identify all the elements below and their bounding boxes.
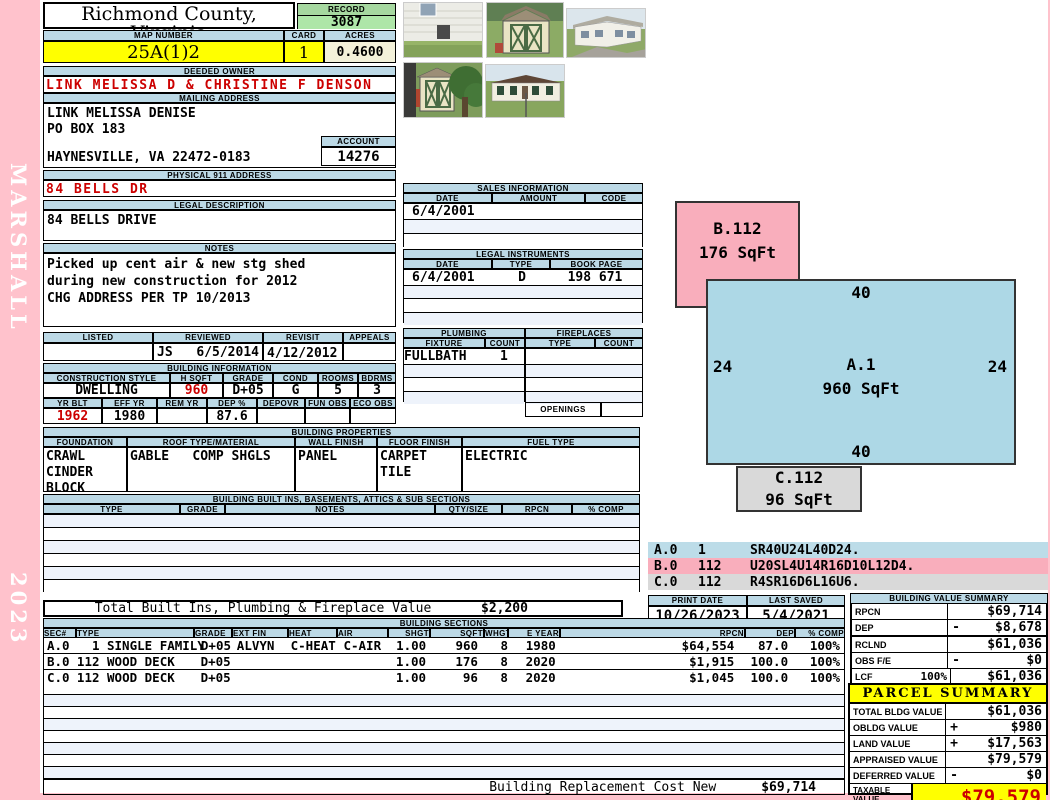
ps-taxable-label: TAXABLE VALUE bbox=[850, 784, 913, 800]
bvs-rclnd-value: $61,036 bbox=[964, 637, 1046, 652]
photo-storage-shed[interactable] bbox=[486, 2, 564, 58]
photo-shed-and-tree[interactable] bbox=[403, 62, 483, 118]
photo-house-front-view[interactable] bbox=[485, 64, 565, 118]
ps-taxable-label-2: VALUE bbox=[853, 795, 880, 800]
built-ins-total-label: Total Built Ins, Plumbing & Fireplace Va… bbox=[45, 601, 481, 616]
bs-a-eyear: 1980 bbox=[508, 638, 560, 653]
ps-totalbldg-value: $61,036 bbox=[962, 704, 1046, 719]
sketch-code-c: C.0 112 R4SR16D6L16U6. bbox=[648, 574, 1048, 590]
li-type-label: TYPE bbox=[492, 259, 550, 269]
li-type: D bbox=[493, 270, 551, 285]
ps-deferred-value: $0 bbox=[962, 768, 1046, 783]
bdrms-value: 3 bbox=[358, 383, 396, 398]
photo-house-angle-view[interactable] bbox=[566, 8, 646, 58]
roof-value: GABLE COMP SHGLS bbox=[127, 447, 295, 492]
account-value: 14276 bbox=[321, 147, 396, 166]
fireplace-type-label: TYPE bbox=[525, 338, 595, 348]
sketch-a-dim-top: 40 bbox=[708, 283, 1014, 302]
bs-b-sec: B.0 bbox=[44, 654, 77, 669]
remyr-label: REM YR bbox=[157, 398, 207, 408]
bs-a-comp: 100% bbox=[794, 638, 844, 653]
sketch-c-sqft: 96 SqFt bbox=[738, 490, 860, 509]
roof-material: COMP SHGLS bbox=[169, 448, 294, 491]
ps-deferred-label: DEFERRED VALUE bbox=[850, 768, 946, 783]
bvs-row-obs: OBS F/E - $0 bbox=[852, 653, 1046, 669]
code-b-num: 112 bbox=[698, 559, 750, 574]
effyr-value: 1980 bbox=[102, 408, 157, 424]
bvs-row-dep: DEP - $8,678 bbox=[852, 620, 1046, 636]
bs-a-heat: C-HEAT bbox=[289, 638, 338, 653]
building-section-row-a: A.0 1 SINGLE FAMILY D+05 ALVYN C-HEAT C-… bbox=[44, 638, 844, 654]
reviewed-by: JS bbox=[157, 345, 173, 360]
acres-value: 0.4600 bbox=[324, 41, 396, 63]
foundation-line-2: CINDER BLOCK bbox=[44, 465, 126, 497]
ps-taxable-label-1: TAXABLE bbox=[853, 786, 890, 795]
county-header-box: Richmond County, Virginia Commissioner o… bbox=[43, 2, 295, 29]
bs-b-dep: 100.0 bbox=[744, 654, 794, 669]
dep-pct-label: DEP % bbox=[207, 398, 257, 408]
bdrms-label: BDRMS bbox=[358, 373, 396, 383]
sketch-code-b: B.0 112 U20SL4U14R16D10L12D4. bbox=[648, 558, 1048, 574]
bvs-rpcn-value: $69,714 bbox=[964, 604, 1046, 619]
card-body: Richmond County, Virginia Commissioner o… bbox=[40, 0, 1048, 793]
li-book: 198 671 bbox=[551, 270, 639, 285]
sketch-b-sqft: 176 SqFt bbox=[677, 243, 798, 262]
bi-type-label: TYPE bbox=[43, 504, 180, 514]
sketch-a-label: A.1 bbox=[708, 355, 1014, 374]
ps-land-value: $17,563 bbox=[962, 736, 1046, 751]
depovr-label: DEPOVR bbox=[257, 398, 305, 408]
grade-value: D+05 bbox=[223, 383, 273, 398]
mailing-line-1: LINK MELISSA DENISE bbox=[44, 104, 395, 122]
bvs-rclnd-label: RCLND bbox=[852, 637, 948, 652]
building-sections-empty-rows bbox=[43, 683, 845, 779]
fireplaces-table bbox=[525, 348, 643, 402]
map-number-label: MAP NUMBER bbox=[43, 30, 284, 41]
mailing-address-label: MAILING ADDRESS bbox=[43, 93, 396, 103]
photo-house-side-view[interactable] bbox=[403, 2, 483, 58]
bvs-obs-label: OBS F/E bbox=[852, 653, 948, 668]
ecoobs-value bbox=[350, 408, 396, 424]
sales-amount-label: AMOUNT bbox=[492, 193, 585, 203]
bi-comp-label: % COMP bbox=[572, 504, 640, 514]
reviewed-date: 6/5/2014 bbox=[196, 345, 259, 360]
remyr-value bbox=[157, 408, 207, 424]
sketch-c-label: C.112 bbox=[738, 468, 860, 487]
ps-row-land: LAND VALUE + $17,563 bbox=[850, 736, 1046, 752]
funobs-value bbox=[305, 408, 350, 424]
legal-description-label: LEGAL DESCRIPTION bbox=[43, 200, 396, 210]
sketch-a-dim-bottom: 40 bbox=[708, 442, 1014, 461]
built-ins-empty-rows bbox=[43, 514, 640, 592]
code-c-sec: C.0 bbox=[648, 575, 698, 590]
bs-a-dep: 87.0 bbox=[744, 638, 794, 653]
legal-instruments-table: 6/4/2001 D 198 671 bbox=[403, 269, 643, 323]
house-side-photo-art bbox=[404, 3, 483, 58]
bvs-row-lcf: LCF100% $61,036 bbox=[852, 669, 1046, 684]
effyr-label: EFF YR bbox=[102, 398, 157, 408]
bs-a-shgt: 1.00 bbox=[388, 638, 430, 653]
plumbing-title: PLUMBING bbox=[403, 328, 525, 338]
building-sections-headers: SEC# TYPE GRADE EXT FIN HEAT AIR SHGT SQ… bbox=[43, 628, 845, 638]
bvs-dep-value: $8,678 bbox=[964, 620, 1046, 635]
parcel-summary-box: PARCEL SUMMARY TOTAL BLDG VALUE $61,036 … bbox=[848, 683, 1048, 795]
ps-land-sign: + bbox=[946, 736, 962, 751]
sales-table: 6/4/2001 bbox=[403, 203, 643, 247]
li-row: 6/4/2001 D 198 671 bbox=[404, 270, 642, 286]
notes-label: NOTES bbox=[43, 243, 396, 253]
fuel-type-value: ELECTRIC bbox=[462, 447, 640, 492]
li-date-label: DATE bbox=[403, 259, 492, 269]
bs-h-heat: HEAT bbox=[288, 628, 337, 638]
bi-notes-label: NOTES bbox=[225, 504, 435, 514]
code-a-sec: A.0 bbox=[648, 543, 698, 558]
revisit-label: REVISIT bbox=[263, 332, 343, 343]
revisit-value: 4/12/2012 bbox=[263, 343, 343, 361]
parcel-summary-title: PARCEL SUMMARY bbox=[850, 685, 1046, 704]
building-section-row-b: B.0 112 WOOD DECK D+05 1.00 176 8 2020 $… bbox=[44, 654, 844, 670]
bs-h-ext: EXT FIN bbox=[232, 628, 288, 638]
rooms-value: 5 bbox=[318, 383, 358, 398]
bs-a-air: C-AIR bbox=[337, 638, 388, 653]
bs-h-grade: GRADE bbox=[194, 628, 232, 638]
funobs-label: FUN OBS bbox=[305, 398, 350, 408]
rooms-label: ROOMS bbox=[318, 373, 358, 383]
sidebar-year-tab: 2023 bbox=[6, 572, 31, 652]
floor-finish-value: CARPET TILE bbox=[377, 447, 462, 492]
built-ins-title: BUILDING BUILT INS, BASEMENTS, ATTICS & … bbox=[43, 494, 640, 504]
hsqft-label: H SQFT bbox=[170, 373, 223, 383]
bs-h-type: TYPE bbox=[76, 628, 194, 638]
foundation-label: FOUNDATION bbox=[43, 437, 127, 447]
bvs-lcf-value: $61,036 bbox=[967, 669, 1046, 684]
appeals-label: APPEALS bbox=[343, 332, 396, 343]
fixture-count-label: COUNT bbox=[485, 338, 525, 348]
bs-a-ext: ALVYN bbox=[233, 638, 289, 653]
bs-b-rpcn: $1,915 bbox=[560, 654, 745, 669]
bs-h-rpcn: RPCN bbox=[560, 628, 745, 638]
sales-row: 6/4/2001 bbox=[404, 204, 642, 220]
ps-land-label: LAND VALUE bbox=[850, 736, 946, 751]
grade-label: GRADE bbox=[223, 373, 273, 383]
sketch-section-c: C.112 96 SqFt bbox=[736, 466, 862, 512]
account-label: ACCOUNT bbox=[321, 136, 396, 147]
plumbing-count: 1 bbox=[500, 349, 524, 364]
bs-h-eyear: E YEAR bbox=[508, 628, 560, 638]
bvs-row-rclnd: RCLND $61,036 bbox=[852, 636, 1046, 653]
bvs-dep-sign: - bbox=[948, 620, 964, 635]
foundation-value: CRAWL CINDER BLOCK bbox=[43, 447, 127, 492]
dep-pct-value: 87.6 bbox=[207, 408, 257, 424]
li-book-label: BOOK PAGE bbox=[550, 259, 643, 269]
acres-label: ACRES bbox=[324, 30, 396, 41]
bi-qty-label: QTY/SIZE bbox=[435, 504, 502, 514]
sidebar-county-tab: MARSHALL bbox=[6, 163, 31, 343]
listed-label: LISTED bbox=[43, 332, 153, 343]
depovr-value bbox=[257, 408, 305, 424]
ps-row-taxable: TAXABLE VALUE $79,579 bbox=[850, 784, 1046, 800]
hsqft-value: 960 bbox=[170, 383, 223, 398]
bvs-lcf-label: LCF bbox=[855, 672, 873, 682]
ps-row-obldg: OBLDG VALUE + $980 bbox=[850, 720, 1046, 736]
sales-code-label: CODE bbox=[585, 193, 643, 203]
bs-b-eyear: 2020 bbox=[508, 654, 560, 669]
replacement-cost-label: Building Replacement Cost New bbox=[489, 780, 716, 795]
plumbing-fixture: FULLBATH bbox=[404, 349, 500, 364]
bvs-lcf-label-cell: LCF100% bbox=[852, 669, 951, 684]
legal-description-value: 84 BELLS DRIVE bbox=[43, 210, 396, 241]
bs-b-whgt: 8 bbox=[484, 654, 508, 669]
bs-a-sqft: 960 bbox=[430, 638, 484, 653]
shed-tree-photo-art bbox=[404, 63, 483, 118]
fixture-label: FIXTURE bbox=[403, 338, 485, 348]
plumbing-table: FULLBATH 1 bbox=[403, 348, 525, 402]
sketch-b-label: B.112 bbox=[677, 219, 798, 238]
building-sections-title: BUILDING SECTIONS bbox=[43, 618, 845, 628]
bs-h-shgt: SHGT bbox=[388, 628, 430, 638]
openings-label: OPENINGS bbox=[525, 402, 601, 417]
ps-obldg-sign: + bbox=[946, 720, 962, 735]
bs-a-sec: A.0 bbox=[44, 638, 77, 653]
notes-line-3: CHG ADDRESS PER TP 10/2013 bbox=[44, 290, 395, 307]
ps-row-deferred: DEFERRED VALUE - $0 bbox=[850, 768, 1046, 784]
sales-date-label: DATE bbox=[403, 193, 492, 203]
ps-row-totalbldg: TOTAL BLDG VALUE $61,036 bbox=[850, 704, 1046, 720]
bs-h-air: AIR bbox=[337, 628, 388, 638]
bvs-rpcn-label: RPCN bbox=[852, 604, 948, 619]
ps-appraised-value: $79,579 bbox=[962, 752, 1046, 767]
bvs-dep-label: DEP bbox=[852, 620, 948, 635]
floor-finish-label: FLOOR FINISH bbox=[377, 437, 462, 447]
construction-style-label: CONSTRUCTION STYLE bbox=[43, 373, 170, 383]
bs-h-sec: SEC# bbox=[43, 628, 76, 638]
floor-line-1: CARPET bbox=[378, 448, 461, 465]
sales-title: SALES INFORMATION bbox=[403, 183, 643, 193]
sketch-code-a: A.0 1 SR40U24L40D24. bbox=[648, 542, 1048, 558]
bs-b-shgt: 1.00 bbox=[388, 654, 430, 669]
map-number-value: 25A(1)2 bbox=[43, 41, 284, 63]
built-ins-total-value: $2,200 bbox=[481, 601, 621, 616]
house-angle-photo-art bbox=[567, 9, 646, 58]
physical-address-value: 84 BELLS DR bbox=[43, 180, 396, 197]
listed-value bbox=[43, 343, 153, 361]
card-label: CARD bbox=[284, 30, 324, 41]
ps-totalbldg-label: TOTAL BLDG VALUE bbox=[850, 704, 946, 719]
sketch-a-sqft: 960 SqFt bbox=[708, 379, 1014, 398]
sketch-section-a: 40 24 24 A.1 960 SqFt 40 bbox=[706, 279, 1016, 465]
plumbing-row: FULLBATH 1 bbox=[404, 349, 524, 365]
print-date-label: PRINT DATE bbox=[648, 595, 747, 606]
notes-line-2: during new construction for 2012 bbox=[44, 273, 395, 290]
last-saved-label: LAST SAVED bbox=[747, 595, 845, 606]
wall-finish-label: WALL FINISH bbox=[295, 437, 377, 447]
bs-b-type: 112 WOOD DECK bbox=[77, 654, 195, 669]
wall-finish-value: PANEL bbox=[295, 447, 377, 492]
house-front-photo-art bbox=[486, 65, 565, 118]
code-a-num: 1 bbox=[698, 543, 750, 558]
building-sections-rows: A.0 1 SINGLE FAMILY D+05 ALVYN C-HEAT C-… bbox=[43, 638, 845, 686]
yrblt-value: 1962 bbox=[43, 408, 102, 424]
code-a-vector: SR40U24L40D24. bbox=[750, 543, 860, 558]
ps-row-appraised: APPRAISED VALUE $79,579 bbox=[850, 752, 1046, 768]
ps-obldg-label: OBLDG VALUE bbox=[850, 720, 946, 735]
bs-h-dep: DEP bbox=[745, 628, 795, 638]
code-b-vector: U20SL4U14R16D10L12D4. bbox=[750, 559, 914, 574]
bvs-obs-sign: - bbox=[948, 653, 964, 668]
bvs-lcf-pct: 100% bbox=[921, 670, 948, 683]
ecoobs-label: ECO OBS bbox=[350, 398, 396, 408]
built-ins-total-row: Total Built Ins, Plumbing & Fireplace Va… bbox=[43, 600, 623, 617]
roof-label: ROOF TYPE/MATERIAL bbox=[127, 437, 295, 447]
fireplaces-title: FIREPLACES bbox=[525, 328, 643, 338]
replacement-cost-value: $69,714 bbox=[761, 780, 816, 795]
bs-b-sqft: 176 bbox=[430, 654, 484, 669]
bvs-row-rpcn: RPCN $69,714 bbox=[852, 604, 1046, 620]
bs-a-grade: D+05 bbox=[195, 638, 233, 653]
yrblt-label: YR BLT bbox=[43, 398, 102, 408]
notes-box: Picked up cent air & new stg shed during… bbox=[43, 253, 396, 327]
record-box: RECORD 3087 bbox=[297, 3, 396, 29]
building-value-summary-table: RPCN $69,714 DEP - $8,678 RCLND $61,036 … bbox=[850, 604, 1048, 686]
notes-line-1: Picked up cent air & new stg shed bbox=[44, 254, 395, 273]
bs-a-type: 1 SINGLE FAMILY bbox=[77, 638, 195, 653]
floor-line-2: TILE bbox=[378, 465, 461, 481]
property-record-card: MARSHALL 2023 Richmond County, Virginia … bbox=[0, 0, 1050, 800]
appeals-value bbox=[343, 343, 396, 361]
record-value: 3087 bbox=[298, 16, 395, 29]
cond-label: COND bbox=[273, 373, 318, 383]
building-value-summary-title: BUILDING VALUE SUMMARY bbox=[850, 593, 1048, 604]
foundation-line-1: CRAWL bbox=[44, 448, 126, 465]
construction-style-value: DWELLING bbox=[43, 383, 170, 398]
reviewed-label: REVIEWED bbox=[153, 332, 263, 343]
bi-grade-label: GRADE bbox=[180, 504, 225, 514]
fuel-type-label: FUEL TYPE bbox=[462, 437, 640, 447]
bs-h-whgt: WHGT bbox=[484, 628, 508, 638]
building-properties-title: BUILDING PROPERTIES bbox=[43, 427, 640, 437]
legal-instruments-title: LEGAL INSTRUMENTS bbox=[403, 249, 643, 259]
bs-a-rpcn: $64,554 bbox=[560, 638, 744, 653]
code-b-sec: B.0 bbox=[648, 559, 698, 574]
fireplace-count-label: COUNT bbox=[595, 338, 643, 348]
ps-obldg-value: $980 bbox=[962, 720, 1046, 735]
li-date: 6/4/2001 bbox=[404, 270, 493, 285]
ps-deferred-sign: - bbox=[946, 768, 962, 783]
shed-photo-art bbox=[487, 3, 564, 58]
bs-b-grade: D+05 bbox=[195, 654, 233, 669]
bvs-obs-value: $0 bbox=[964, 653, 1046, 668]
bs-b-comp: 100% bbox=[794, 654, 844, 669]
code-c-vector: R4SR16D6L16U6. bbox=[750, 575, 860, 590]
physical-address-label: PHYSICAL 911 ADDRESS bbox=[43, 170, 396, 180]
code-c-num: 112 bbox=[698, 575, 750, 590]
building-info-title: BUILDING INFORMATION bbox=[43, 363, 396, 373]
deeded-owner-label: DEEDED OWNER bbox=[43, 66, 396, 76]
replacement-cost-row: Building Replacement Cost New $69,714 bbox=[43, 779, 845, 795]
bi-rpcn-label: RPCN bbox=[502, 504, 572, 514]
cond-value: G bbox=[273, 383, 318, 398]
reviewed-value: JS 6/5/2014 bbox=[153, 343, 263, 361]
bs-h-sqft: SQFT bbox=[430, 628, 484, 638]
bs-a-whgt: 8 bbox=[484, 638, 508, 653]
card-value: 1 bbox=[284, 41, 324, 63]
openings-value bbox=[601, 402, 643, 417]
bs-h-comp: % COMP bbox=[795, 628, 845, 638]
ps-appraised-label: APPRAISED VALUE bbox=[850, 752, 946, 767]
roof-type: GABLE bbox=[128, 448, 169, 491]
ps-taxable-value: $79,579 bbox=[913, 784, 1046, 800]
deeded-owner-value: LINK MELISSA D & CHRISTINE F DENSON bbox=[43, 76, 396, 93]
